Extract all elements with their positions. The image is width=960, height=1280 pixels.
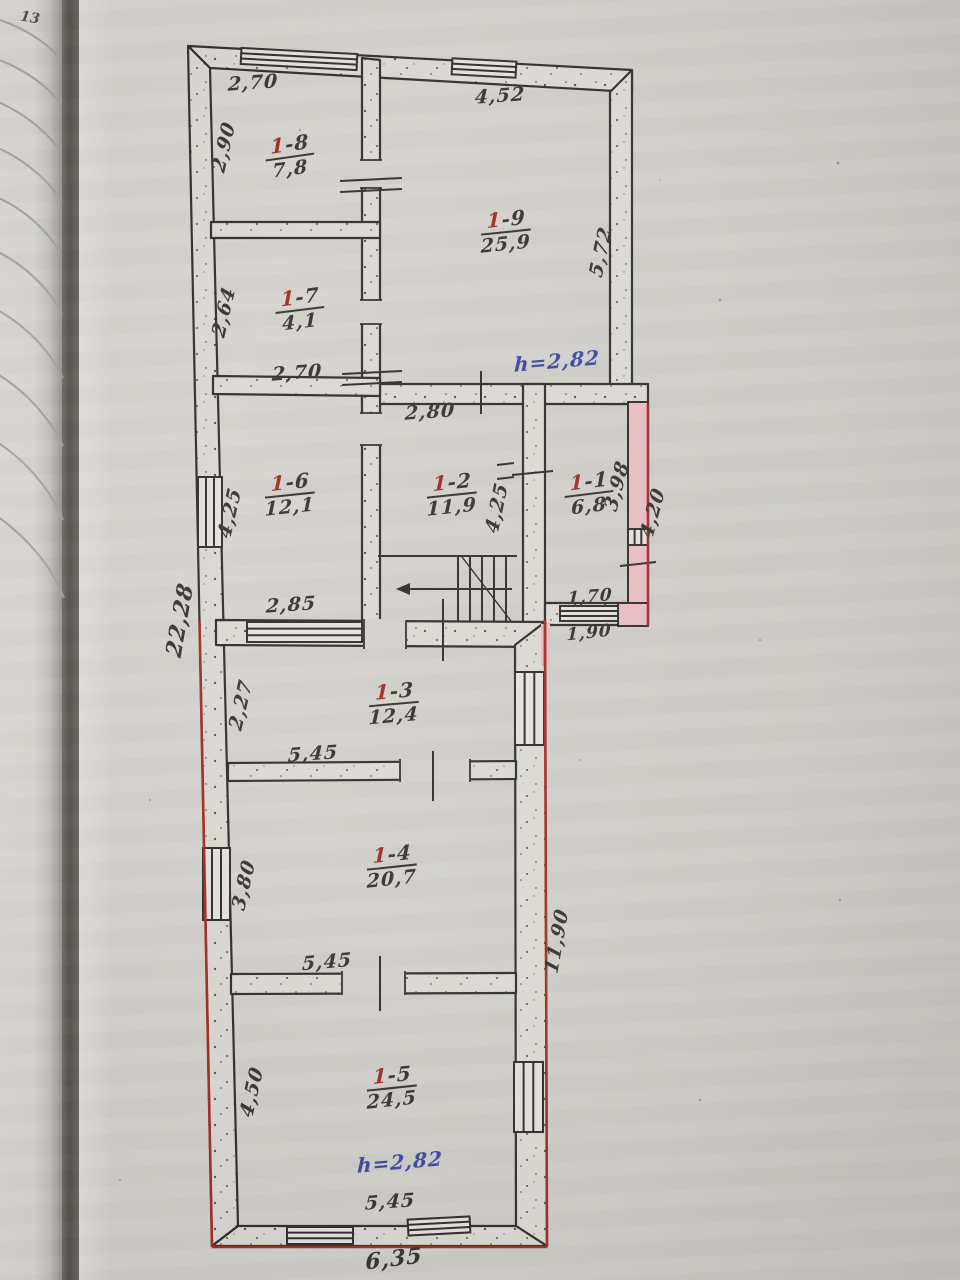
photo-vignette bbox=[0, 0, 960, 1280]
floor-plan-photo: 13 2,70 2,90 4,52 5,72 2,64 2,70 2,80 4,… bbox=[0, 0, 960, 1280]
